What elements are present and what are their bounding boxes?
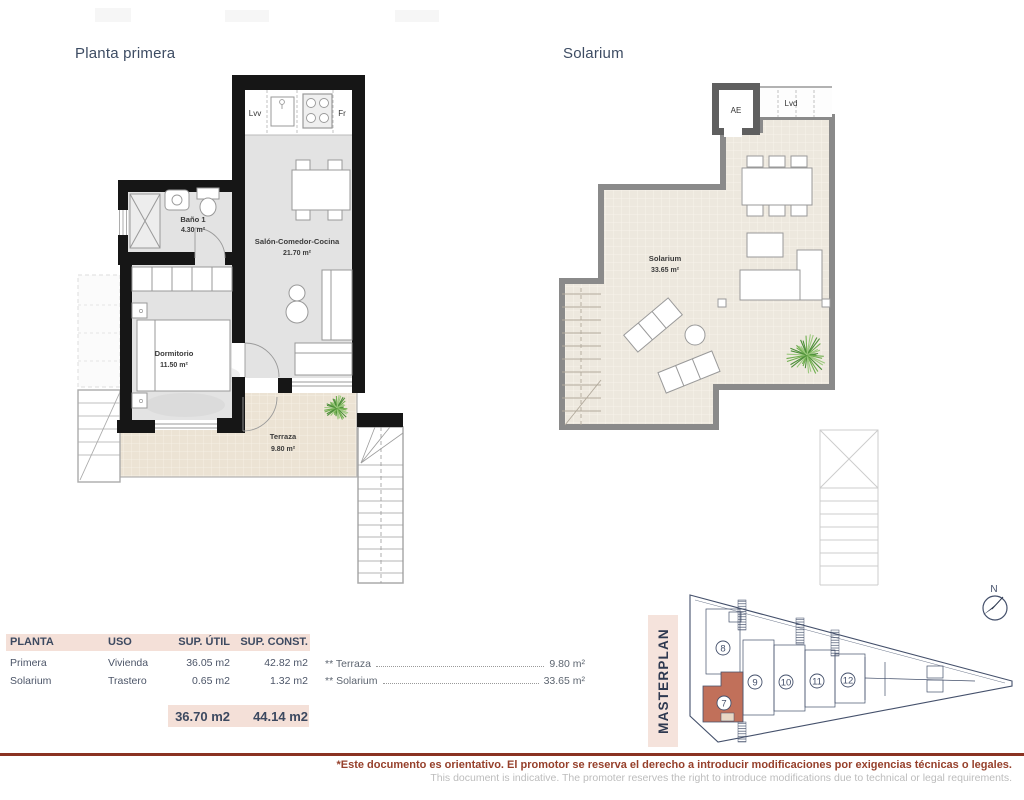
footer-rule — [0, 753, 1024, 756]
laundry-label: Lvd — [785, 99, 798, 108]
floorplan-document: Planta primera Solarium — [0, 0, 1024, 800]
col-sup-const: SUP. CONST. — [240, 636, 308, 648]
total-sup-util: 36.70 m2 — [175, 709, 230, 724]
table-row: Solarium Trastero 0.65 m2 1.32 m2 — [6, 674, 310, 690]
dotted-leader — [383, 683, 539, 684]
compass-icon: N — [983, 584, 1007, 620]
unit-number-12: 12 — [843, 675, 854, 686]
cell-sup-util: 0.65 m2 — [192, 675, 230, 687]
side-table — [286, 301, 308, 323]
kitchen-counter: Lvv Fr — [245, 90, 352, 135]
room-area-dormitorio: 11.50 m² — [160, 362, 188, 369]
washbasin — [165, 190, 189, 210]
totals-row: 36.70 m2 44.14 m2 — [6, 708, 310, 724]
annotation-solarium: ** Solarium 33.65 m² — [325, 672, 585, 687]
cell-planta: Primera — [10, 657, 47, 669]
disclaimer-en: This document is indicative. The promote… — [200, 772, 1012, 784]
neighbour-outline — [78, 275, 120, 387]
unit-7-porch — [721, 713, 734, 721]
exterior-stair-right — [820, 430, 878, 585]
faint-watermark — [395, 10, 439, 22]
unit-number-10: 10 — [781, 677, 792, 688]
dotted-leader — [376, 666, 544, 667]
unit-number-7: 7 — [721, 698, 726, 709]
faint-watermark — [225, 10, 269, 22]
plan2-title: Solarium — [563, 45, 624, 62]
annotation-value: 33.65 m² — [544, 675, 585, 687]
elevator-label: AE — [731, 106, 742, 115]
stove — [303, 94, 332, 128]
unit-number-9: 9 — [752, 677, 757, 688]
annotation-terraza: ** Terraza 9.80 m² — [325, 655, 585, 670]
terrace-window — [292, 382, 352, 386]
stair-bottom-right — [358, 427, 403, 583]
kitchen-sink — [271, 97, 294, 126]
masterplan: MASTERPLAN — [645, 582, 1024, 757]
exterior-stair-left — [78, 390, 120, 482]
plan1-floorplan: Lvv Fr — [75, 75, 410, 590]
fridge-label: Fr — [338, 109, 346, 118]
room-label-dormitorio: Dormitorio — [155, 349, 194, 358]
wardrobe — [132, 267, 232, 291]
room-label-terraza: Terraza — [270, 432, 297, 441]
bathroom-window — [118, 210, 128, 235]
col-sup-util: SUP. ÚTIL — [178, 636, 230, 648]
unit-number-8: 8 — [720, 643, 725, 654]
room-label-solarium: Solarium — [649, 254, 682, 263]
room-area-terraza: 9.80 m² — [271, 446, 296, 453]
masterplan-title: MASTERPLAN — [656, 628, 671, 734]
unit-number-11: 11 — [812, 676, 822, 687]
annotation-label: ** Solarium — [325, 675, 378, 687]
annotation-value: 9.80 m² — [549, 658, 585, 670]
compass-north-label: N — [990, 584, 997, 595]
cell-sup-const: 42.82 m2 — [264, 657, 308, 669]
total-sup-const: 44.14 m2 — [253, 709, 308, 724]
solarium-dining-table — [742, 156, 812, 216]
plan1-title: Planta primera — [75, 45, 175, 62]
room-area-solarium: 33.65 m² — [651, 267, 680, 274]
plan2-floorplan: Lvd AE — [525, 78, 915, 593]
disclaimer-es: *Este documento es orientativo. El promo… — [200, 759, 1012, 771]
cell-uso: Trastero — [108, 675, 147, 687]
room-label-salon: Salón-Comedor-Cocina — [255, 237, 340, 246]
room-area-salon: 21.70 m² — [283, 250, 312, 257]
post — [822, 299, 830, 307]
post — [718, 299, 726, 307]
col-uso: USO — [108, 636, 132, 648]
shower — [130, 194, 160, 248]
faint-watermark — [95, 8, 131, 22]
cell-uso: Vivienda — [108, 657, 148, 669]
sliding-door — [155, 424, 217, 428]
elevator-block: AE — [712, 83, 760, 137]
room-label-bano: Baño 1 — [180, 215, 206, 224]
cell-planta: Solarium — [10, 675, 51, 687]
cell-sup-const: 1.32 m2 — [270, 675, 308, 687]
side-table — [289, 285, 305, 301]
table-header-row: PLANTA USO SUP. ÚTIL SUP. CONST. — [6, 635, 310, 651]
dishwasher-label: Lvv — [249, 109, 261, 118]
round-table — [685, 325, 705, 345]
room-area-bano: 4.30 m² — [181, 227, 206, 234]
col-planta: PLANTA — [10, 636, 54, 648]
annotation-label: ** Terraza — [325, 658, 371, 670]
laundry-area: Lvd — [760, 87, 832, 117]
cell-sup-util: 36.05 m2 — [186, 657, 230, 669]
table-row: Primera Vivienda 36.05 m2 42.82 m2 — [6, 656, 310, 672]
